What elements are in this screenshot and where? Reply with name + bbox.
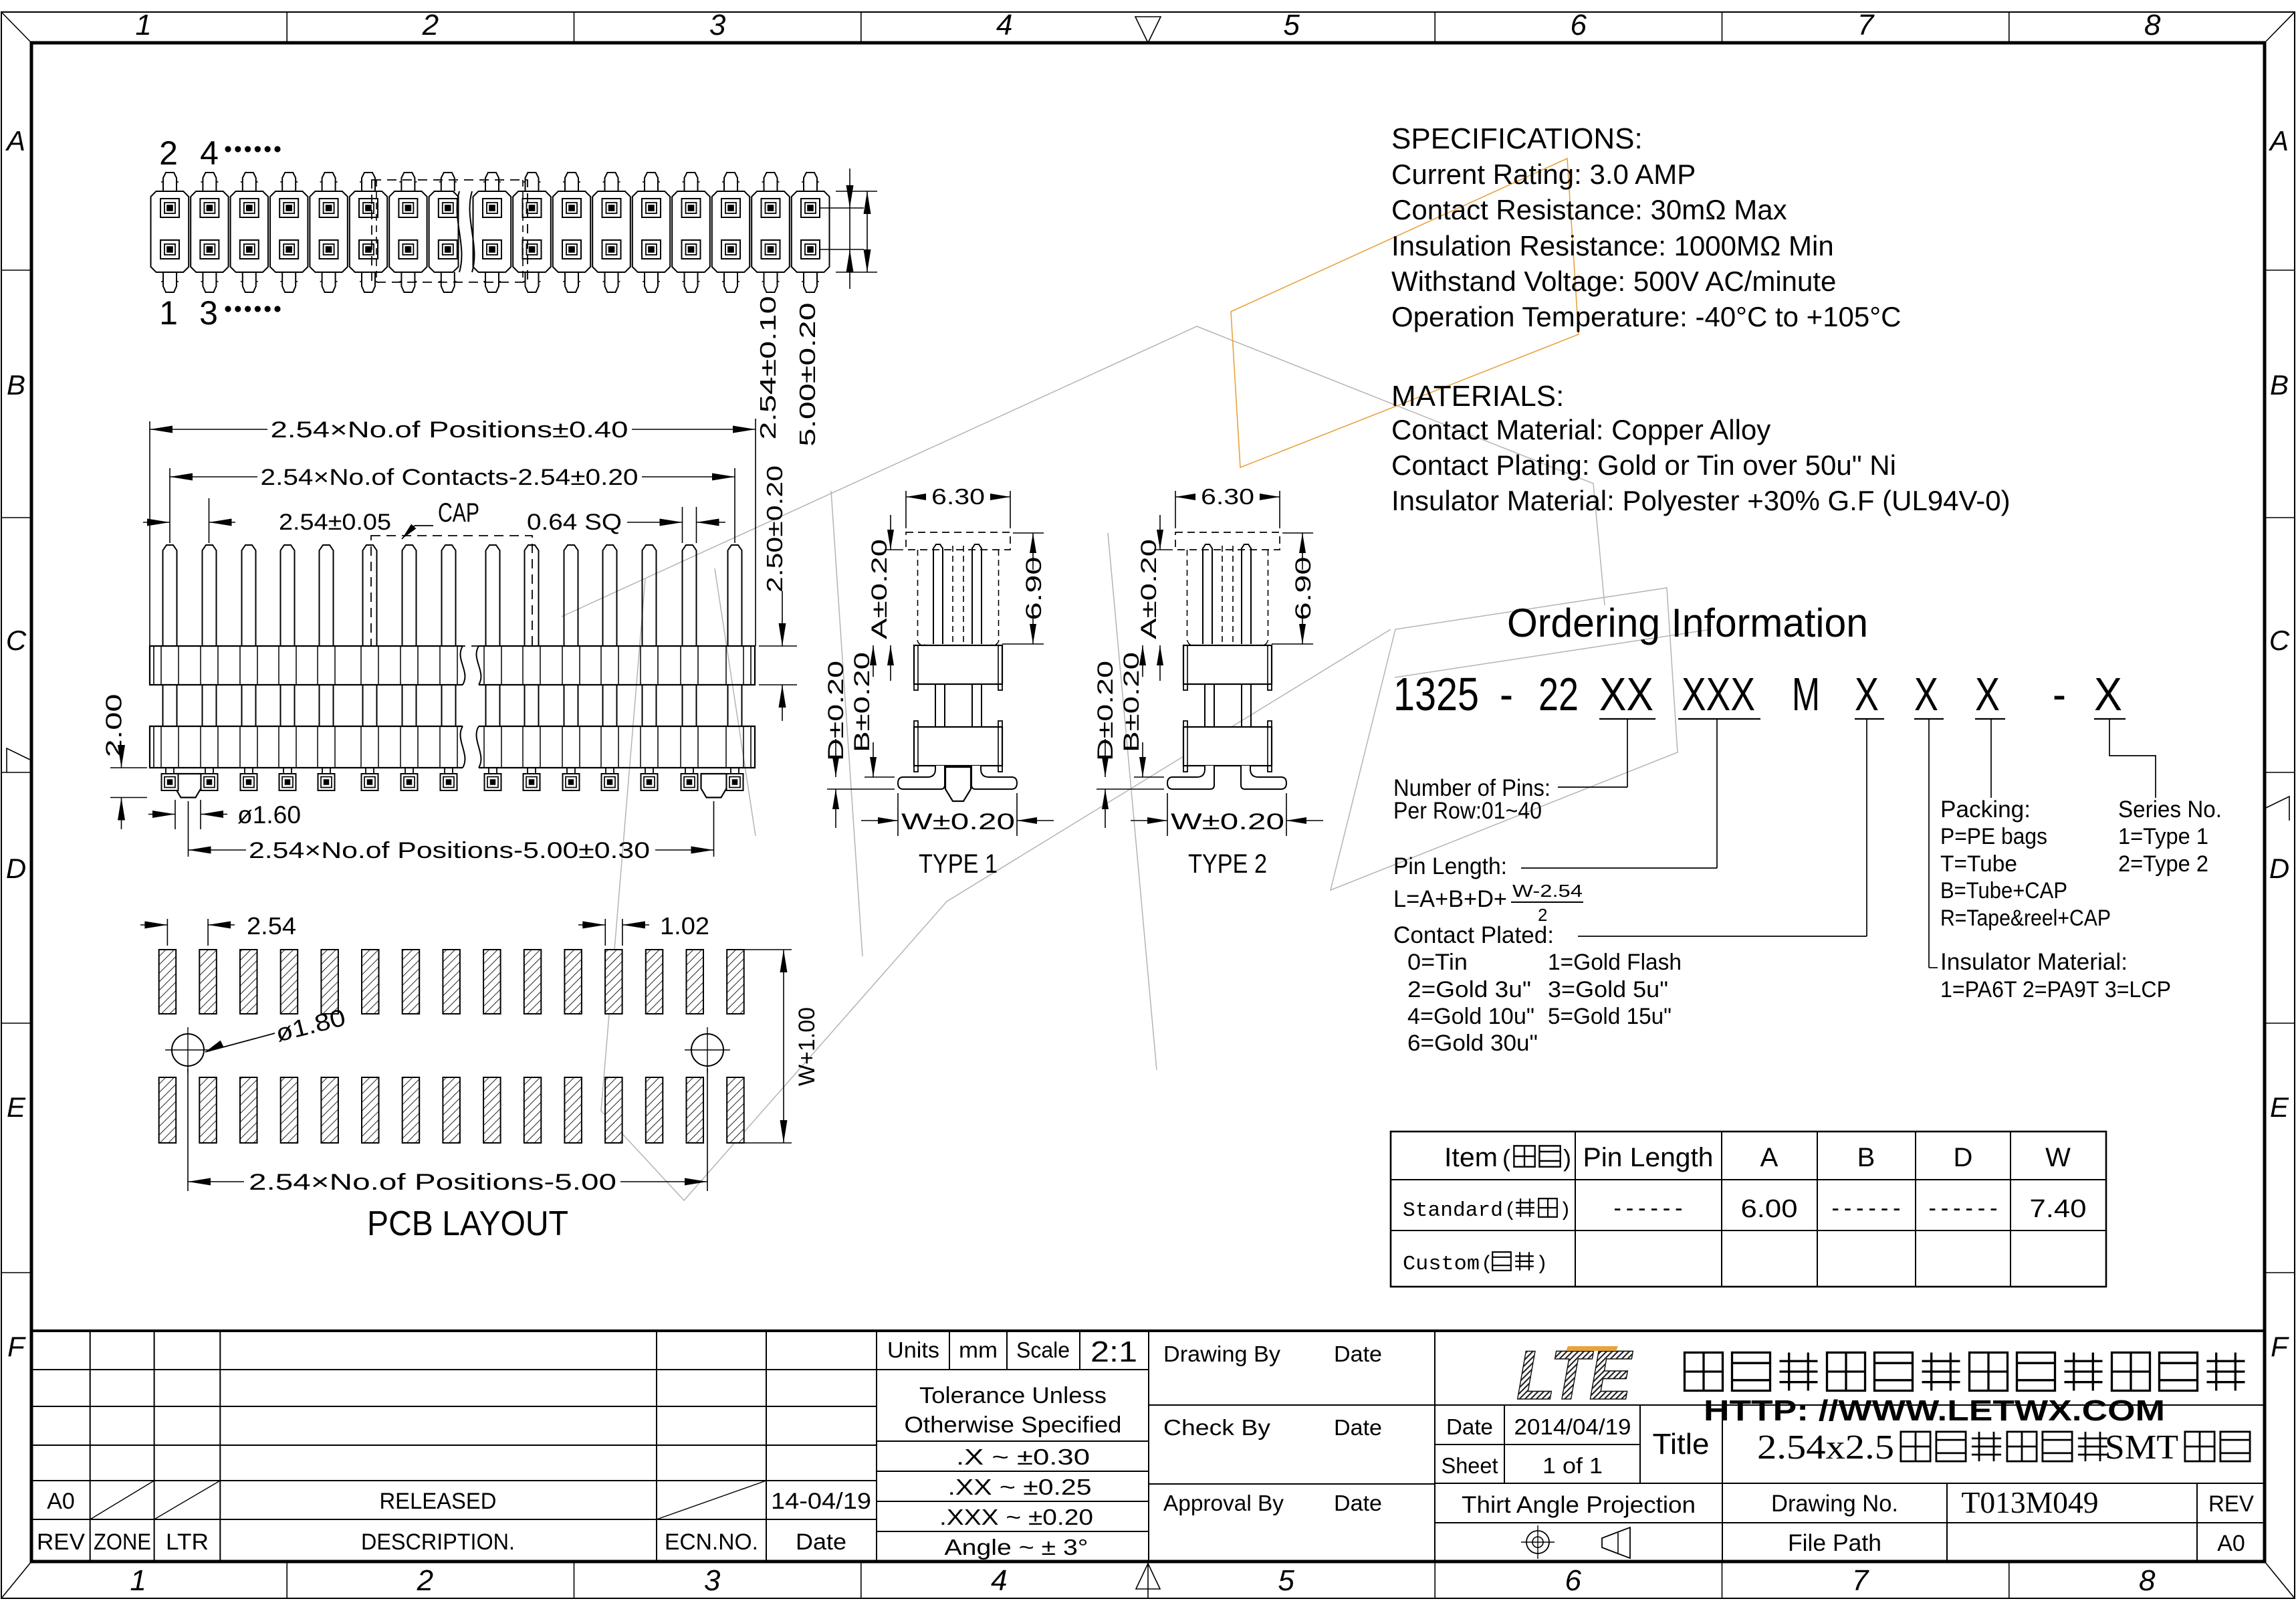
svg-text:E: E xyxy=(7,1091,26,1123)
svg-text:T013M049: T013M049 xyxy=(1962,1485,2099,1519)
svg-text:D±0.20: D±0.20 xyxy=(1093,661,1117,761)
svg-text:-: - xyxy=(1500,668,1513,720)
svg-text:W±0.20: W±0.20 xyxy=(901,809,1015,835)
svg-text:W+1.00: W+1.00 xyxy=(794,1007,820,1086)
svg-text:Contact Plating: Gold or Tin o: Contact Plating: Gold or Tin over 50u" N… xyxy=(1391,449,1896,481)
svg-text:Date: Date xyxy=(1334,1415,1382,1440)
svg-text:1 of 1: 1 of 1 xyxy=(1542,1453,1603,1478)
svg-text:Contact Plated:: Contact Plated: xyxy=(1393,922,1554,948)
svg-text:C: C xyxy=(6,625,27,656)
svg-text:7: 7 xyxy=(1852,1564,1869,1597)
svg-text:6: 6 xyxy=(1565,1564,1582,1597)
svg-text:6.30: 6.30 xyxy=(1201,484,1254,509)
svg-text:Sheet: Sheet xyxy=(1442,1453,1498,1478)
svg-text:Date: Date xyxy=(796,1529,846,1555)
svg-text:L=A+B+D+: L=A+B+D+ xyxy=(1393,886,1507,912)
svg-text:): ) xyxy=(1563,1144,1571,1172)
svg-text:Contact Resistance: 30mΩ Max: Contact Resistance: 30mΩ Max xyxy=(1391,194,1787,225)
svg-text:3: 3 xyxy=(709,9,726,41)
svg-text:Withstand Voltage: 500V AC/min: Withstand Voltage: 500V AC/minute xyxy=(1391,265,1836,297)
svg-text:X: X xyxy=(1914,668,1938,720)
svg-text:SPECIFICATIONS:: SPECIFICATIONS: xyxy=(1391,122,1643,155)
svg-text:Date: Date xyxy=(1446,1414,1493,1439)
svg-text:6: 6 xyxy=(1571,9,1587,41)
svg-text:Standard: Standard xyxy=(1403,1199,1503,1222)
svg-text:): ) xyxy=(1559,1200,1571,1222)
svg-text:4=Gold 10u": 4=Gold 10u" xyxy=(1407,1004,1534,1029)
svg-text:.XXX ~ ±0.20: .XXX ~ ±0.20 xyxy=(939,1505,1093,1529)
svg-text:Packing:: Packing: xyxy=(1940,796,2031,823)
svg-text:2.00: 2.00 xyxy=(102,694,126,758)
svg-text:Current Rating: 3.0 AMP: Current Rating: 3.0 AMP xyxy=(1391,158,1696,190)
svg-text:A: A xyxy=(1760,1143,1778,1172)
svg-text:Scale: Scale xyxy=(1016,1337,1070,1362)
svg-text:-: - xyxy=(2053,668,2066,720)
svg-text:.XX ~ ±0.25: .XX ~ ±0.25 xyxy=(948,1475,1092,1499)
svg-text:Insulator Material:: Insulator Material: xyxy=(1940,949,2128,975)
svg-text:Thirt Angle Projection: Thirt Angle Projection xyxy=(1462,1492,1696,1518)
svg-text:5.00±0.20: 5.00±0.20 xyxy=(795,303,820,447)
svg-text:DESCRIPTION.: DESCRIPTION. xyxy=(361,1529,515,1555)
svg-text:2.54±0.05: 2.54±0.05 xyxy=(279,510,391,535)
svg-text:7: 7 xyxy=(1857,9,1875,41)
svg-text:D: D xyxy=(6,853,26,884)
svg-text:mm: mm xyxy=(959,1337,998,1362)
svg-text:CAP: CAP xyxy=(438,498,479,528)
svg-text:3=Gold 5u": 3=Gold 5u" xyxy=(1548,977,1668,1002)
svg-text:D±0.20: D±0.20 xyxy=(824,661,848,761)
svg-text:2.54×No.of Positions-5.00: 2.54×No.of Positions-5.00 xyxy=(249,1170,616,1195)
svg-text:2.54×No.of Positions-5.00±0.3: 2.54×No.of Positions-5.00±0.30 xyxy=(249,838,650,863)
svg-text:F: F xyxy=(7,1331,26,1362)
svg-text:14-04/19: 14-04/19 xyxy=(771,1489,871,1514)
svg-text:Angle ~ ± 3°: Angle ~ ± 3° xyxy=(945,1535,1088,1560)
svg-text:Date: Date xyxy=(1334,1491,1382,1515)
svg-text:3: 3 xyxy=(199,294,218,332)
svg-text:A±0.20: A±0.20 xyxy=(867,539,891,639)
svg-text:2=Type 2: 2=Type 2 xyxy=(2118,851,2208,877)
svg-text:X: X xyxy=(2094,668,2122,720)
svg-text:4: 4 xyxy=(996,9,1012,41)
svg-text:Drawing No.: Drawing No. xyxy=(1771,1491,1898,1517)
svg-text:Pin Length: Pin Length xyxy=(1583,1143,1714,1172)
svg-text:0=Tin: 0=Tin xyxy=(1407,950,1468,975)
svg-text:1325: 1325 xyxy=(1393,668,1479,720)
svg-text:Contact Material: Copper Alloy: Contact Material: Copper Alloy xyxy=(1391,414,1770,445)
svg-text:REV: REV xyxy=(37,1529,85,1555)
svg-text:M: M xyxy=(1792,668,1820,720)
svg-text:ECN.NO.: ECN.NO. xyxy=(665,1529,758,1555)
svg-text:Per Row:01~40: Per Row:01~40 xyxy=(1393,798,1542,824)
svg-text:Pin Length:: Pin Length: xyxy=(1393,853,1507,879)
svg-text:6.90: 6.90 xyxy=(1291,557,1315,621)
svg-text:E: E xyxy=(2270,1091,2289,1123)
svg-text:2: 2 xyxy=(422,9,439,41)
svg-text:Insulator Material: Polyester: Insulator Material: Polyester +30% G.F (… xyxy=(1391,485,2011,516)
svg-text:D: D xyxy=(2269,853,2289,884)
svg-text:1=Type 1: 1=Type 1 xyxy=(2118,824,2208,849)
svg-text:MATERIALS:: MATERIALS: xyxy=(1391,380,1564,413)
svg-text:Approval By: Approval By xyxy=(1163,1491,1284,1515)
svg-text:B=Tube+CAP: B=Tube+CAP xyxy=(1940,878,2067,903)
svg-text:2.54: 2.54 xyxy=(247,912,296,940)
svg-text:W±0.20: W±0.20 xyxy=(1171,809,1284,835)
svg-text:------: ------ xyxy=(1926,1196,2000,1223)
svg-text:2.54×No.of Contacts-2.54±0.20: 2.54×No.of Contacts-2.54±0.20 xyxy=(261,465,639,490)
svg-text:1: 1 xyxy=(159,294,178,332)
svg-text:2.54×No.of Positions±0.40: 2.54×No.of Positions±0.40 xyxy=(271,417,628,443)
svg-text:ø1.60: ø1.60 xyxy=(237,801,301,829)
svg-text:6.00: 6.00 xyxy=(1741,1195,1798,1223)
svg-text:2.50±0.20: 2.50±0.20 xyxy=(762,465,787,593)
svg-text:File Path: File Path xyxy=(1788,1530,1881,1556)
svg-text:Drawing By: Drawing By xyxy=(1163,1342,1281,1366)
svg-text:4: 4 xyxy=(200,134,219,172)
svg-text:Series No.: Series No. xyxy=(2118,796,2222,823)
svg-text:(: ( xyxy=(1504,1200,1516,1222)
svg-text:2: 2 xyxy=(417,1564,433,1597)
svg-text:6.90: 6.90 xyxy=(1022,557,1046,621)
svg-text:F: F xyxy=(2271,1331,2289,1362)
svg-text:1=PA6T 2=PA9T 3=LCP: 1=PA6T 2=PA9T 3=LCP xyxy=(1940,977,2171,1002)
svg-text:2: 2 xyxy=(159,134,178,172)
svg-text:T=Tube: T=Tube xyxy=(1940,851,2017,877)
svg-text:(: ( xyxy=(1481,1253,1493,1276)
svg-text:6.30: 6.30 xyxy=(931,484,985,509)
svg-text:Otherwise Specified: Otherwise Specified xyxy=(905,1412,1122,1438)
svg-text:8: 8 xyxy=(2144,9,2161,41)
svg-text:Item: Item xyxy=(1444,1143,1498,1172)
svg-text:22: 22 xyxy=(1538,668,1579,720)
svg-text:1=Gold Flash: 1=Gold Flash xyxy=(1548,950,1682,975)
svg-text:B: B xyxy=(2270,369,2289,401)
svg-text:HTTP: //WWW.LETWX.COM: HTTP: //WWW.LETWX.COM xyxy=(1704,1394,2165,1427)
svg-text:W: W xyxy=(2045,1143,2071,1172)
svg-text:X: X xyxy=(1855,668,1879,720)
svg-text:RELEASED: RELEASED xyxy=(380,1489,497,1514)
svg-text:LTR: LTR xyxy=(166,1529,209,1555)
svg-text:2.54x2.5: 2.54x2.5 xyxy=(1757,1428,1894,1467)
svg-text:W-2.54: W-2.54 xyxy=(1512,881,1583,901)
svg-text:A0: A0 xyxy=(47,1489,75,1514)
svg-text:PCB LAYOUT: PCB LAYOUT xyxy=(367,1204,568,1243)
svg-text:1.02: 1.02 xyxy=(660,912,709,940)
svg-text:Date: Date xyxy=(1334,1342,1382,1366)
svg-text:XXX: XXX xyxy=(1682,668,1755,720)
svg-text:R=Tape&reel+CAP: R=Tape&reel+CAP xyxy=(1940,905,2111,931)
svg-text:(: ( xyxy=(1502,1144,1510,1172)
svg-text:P=PE bags: P=PE bags xyxy=(1940,824,2047,849)
svg-text:5: 5 xyxy=(1278,1564,1294,1597)
svg-text:B±0.20: B±0.20 xyxy=(850,652,874,752)
svg-text:TYPE 1: TYPE 1 xyxy=(919,849,998,879)
svg-text:B±0.20: B±0.20 xyxy=(1119,652,1143,752)
svg-text:1: 1 xyxy=(130,1564,146,1597)
svg-text:Operation Temperature: -40°C t: Operation Temperature: -40°C to +105°C xyxy=(1391,301,1901,332)
svg-text:Ordering Information: Ordering Information xyxy=(1507,601,1868,645)
svg-text:Insulation Resistance: 1000MΩ: Insulation Resistance: 1000MΩ Min xyxy=(1391,230,1834,261)
svg-text:REV: REV xyxy=(2208,1491,2254,1517)
svg-text:Check By: Check By xyxy=(1163,1415,1271,1440)
svg-text:7.40: 7.40 xyxy=(2030,1195,2087,1223)
svg-text:------: ------ xyxy=(1829,1196,1903,1223)
svg-text:C: C xyxy=(2269,625,2290,656)
svg-text:B: B xyxy=(7,369,25,401)
svg-text:5: 5 xyxy=(1283,9,1300,41)
svg-text:XX: XX xyxy=(1599,668,1653,720)
svg-text:B: B xyxy=(1857,1143,1875,1172)
svg-text:2014/04/19: 2014/04/19 xyxy=(1514,1414,1631,1439)
svg-text:X: X xyxy=(1975,668,2000,720)
svg-text:SMT: SMT xyxy=(2105,1428,2178,1467)
svg-text:8: 8 xyxy=(2139,1564,2156,1597)
svg-text:A0: A0 xyxy=(2217,1531,2245,1556)
svg-text:D: D xyxy=(1954,1143,1973,1172)
svg-text:2=Gold 3u": 2=Gold 3u" xyxy=(1407,977,1531,1002)
svg-text:Title: Title xyxy=(1653,1428,1710,1461)
svg-text:------: ------ xyxy=(1611,1196,1685,1223)
svg-text:5=Gold 15u": 5=Gold 15u" xyxy=(1548,1004,1672,1029)
svg-text:0.64 SQ: 0.64 SQ xyxy=(527,510,622,535)
svg-text:3: 3 xyxy=(704,1564,721,1597)
svg-text:ZONE: ZONE xyxy=(94,1529,151,1555)
svg-text:4: 4 xyxy=(991,1564,1007,1597)
svg-text:Custom: Custom xyxy=(1403,1253,1480,1276)
svg-text:Tolerance Unless: Tolerance Unless xyxy=(919,1383,1107,1408)
svg-text:TYPE 2: TYPE 2 xyxy=(1188,849,1267,879)
svg-text:1: 1 xyxy=(135,9,151,41)
svg-text:A: A xyxy=(2268,125,2289,156)
svg-text:): ) xyxy=(1536,1253,1548,1276)
svg-text:A±0.20: A±0.20 xyxy=(1137,539,1161,639)
svg-text:6=Gold 30u": 6=Gold 30u" xyxy=(1407,1031,1538,1056)
svg-text:.X ~ ±0.30: .X ~ ±0.30 xyxy=(956,1444,1090,1469)
svg-text:Units: Units xyxy=(887,1337,939,1362)
svg-text:A: A xyxy=(5,125,25,156)
svg-text:2:1: 2:1 xyxy=(1090,1335,1137,1368)
svg-text:2.54±0.10: 2.54±0.10 xyxy=(756,296,780,440)
